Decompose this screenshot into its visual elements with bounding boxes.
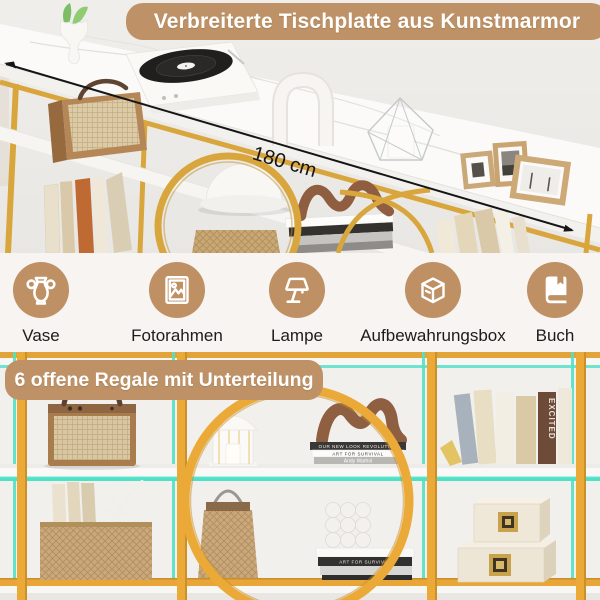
storage-box-icon (405, 262, 461, 318)
book-spine-text: OUR NEW LOOK REVOLUTION (319, 444, 398, 449)
feature-label-lamp: Lampe (271, 326, 323, 346)
shelf-books-left (44, 172, 132, 253)
book-spine-text: ART FOR SURVIVAL (332, 451, 383, 456)
shelves-closeup-photo: OUR NEW LOOK REVOLUTION ART FOR SURVIVAL… (0, 352, 600, 600)
bottom-banner-label: 6 offene Regale mit Unterteilung (14, 369, 313, 392)
photo-frame-icon (149, 262, 205, 318)
top-banner: Verbreiterte Tischplatte aus Kunstmarmor (126, 3, 600, 40)
console-table-photo: 180 cm Verbreiterte Tischplatte aus Kuns… (0, 0, 600, 253)
feature-label-book: Buch (536, 326, 575, 346)
book-spine-text-vertical: EXCITED (547, 398, 556, 440)
book-icon (527, 262, 583, 318)
feature-label-photo-frame: Fotorahmen (131, 326, 223, 346)
feature-label-vase: Vase (22, 326, 60, 346)
product-infographic: 180 cm Verbreiterte Tischplatte aus Kuns… (0, 0, 600, 600)
vase-icon (13, 262, 69, 318)
bottom-banner: 6 offene Regale mit Unterteilung (5, 360, 323, 400)
feature-strip: Vase Fotorahmen (0, 253, 600, 352)
book-spine-text: Andy Warhol (344, 458, 372, 464)
feature-book: Buch (475, 262, 600, 346)
rattan-basket-top-photo (192, 230, 280, 253)
top-banner-label: Verbreiterte Tischplatte aus Kunstmarmor (154, 10, 581, 34)
lamp-icon (269, 262, 325, 318)
